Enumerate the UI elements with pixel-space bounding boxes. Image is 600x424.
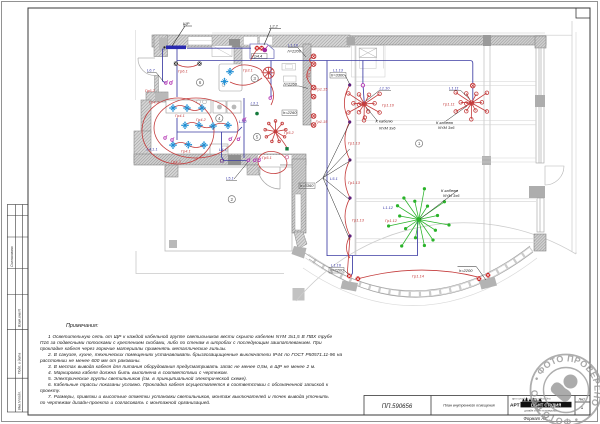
svg-text:L1.10: L1.10: [380, 86, 391, 91]
svg-text:П16 за подвесными потолками с: П16 за подвесными потолками с креплением…: [40, 340, 322, 346]
svg-text:Согласовано: Согласовано: [10, 246, 14, 267]
svg-text:Гр1.13: Гр1.13: [348, 141, 361, 146]
svg-text:3: 3: [253, 76, 256, 81]
svg-text:Гр4.1: Гр4.1: [175, 113, 185, 118]
svg-text:Гр4.3: Гр4.3: [171, 159, 182, 164]
svg-text:Подп. и дата: Подп. и дата: [18, 353, 22, 374]
svg-text:ПП.590656: ПП.590656: [382, 404, 413, 410]
svg-text:ЩР: ЩР: [183, 21, 190, 26]
svg-text:h=2200: h=2200: [288, 48, 302, 53]
svg-text:6: 6: [199, 80, 202, 85]
svg-text:L5.1: L5.1: [330, 176, 338, 181]
svg-text:Инв.N подл.: Инв.N подл.: [18, 391, 22, 410]
svg-text:6. Кабельные трассы показа: 6. Кабельные трассы показаны условно. Пр…: [48, 381, 329, 388]
svg-text:Гр4.2: Гр4.2: [196, 117, 207, 122]
svg-text:2: 2: [231, 197, 234, 202]
svg-text:h=3360: h=3360: [300, 183, 314, 188]
svg-text:NYM 3х6: NYM 3х6: [443, 193, 460, 198]
svg-text:2. В санузле, кухне, техни: 2. В санузле, кухне, технических помещен…: [47, 352, 342, 358]
svg-text:L5.1: L5.1: [226, 176, 234, 181]
svg-text:L3.1: L3.1: [251, 101, 259, 106]
svg-text:L2.2: L2.2: [270, 24, 279, 29]
svg-text:Гр1.15: Гр1.15: [316, 119, 329, 124]
svg-text:проекту.: проекту.: [40, 389, 60, 394]
svg-text:h=3300: h=3300: [331, 73, 345, 78]
svg-text:7. Размеры, привязки и выс: 7. Размеры, привязки и высотные отметки …: [48, 393, 329, 400]
svg-text:h=2200: h=2200: [459, 268, 473, 273]
svg-text:Гр1.13: Гр1.13: [352, 218, 365, 223]
svg-text:NYM 3х6: NYM 3х6: [379, 126, 396, 131]
svg-text:прокладке кабеля через горючие: прокладке кабеля через горючие материалы…: [40, 346, 227, 352]
svg-text:1: 1: [418, 141, 421, 146]
svg-text:К кабелю: К кабелю: [376, 119, 393, 124]
svg-text:План внутреннего освещения: План внутреннего освещения: [443, 404, 495, 408]
svg-text:Гр1.11: Гр1.11: [443, 102, 455, 107]
svg-text:5: 5: [256, 135, 259, 140]
svg-text:NYM 3х6: NYM 3х6: [438, 125, 455, 130]
svg-text:5. Электрические группы св: 5. Электрические группы светильников (см…: [48, 375, 247, 382]
svg-text:Гр5.1: Гр5.1: [262, 155, 272, 160]
svg-text:Примечания:: Примечания:: [66, 323, 99, 329]
svg-text:L4.1.1: L4.1.1: [147, 147, 158, 152]
svg-text:АРТ: АРТ: [510, 403, 520, 409]
svg-text:Гр3.1: Гр3.1: [243, 68, 253, 73]
svg-text:h=2200: h=2200: [330, 268, 344, 273]
svg-text:Гр4.1: Гр4.1: [181, 149, 191, 154]
svg-text:Гр4.3: Гр4.3: [149, 100, 160, 105]
svg-text:Гр4.4: Гр4.4: [253, 54, 264, 59]
svg-text:L4.1: L4.1: [219, 147, 227, 152]
svg-text:Взам.инв.N: Взам.инв.N: [18, 309, 22, 327]
svg-text:Гр6.1: Гр6.1: [178, 69, 188, 74]
svg-text:L6.7: L6.7: [147, 68, 156, 73]
svg-text:4. Маркировка кабеля должн: 4. Маркировка кабеля должна быть выполне…: [48, 370, 228, 376]
svg-text:Гр1.10: Гр1.10: [382, 103, 395, 108]
svg-text:Гр1.12: Гр1.12: [385, 218, 398, 223]
svg-text:h=2260: h=2260: [283, 110, 297, 115]
svg-text:3. В местах вывода кабеля: 3. В местах вывода кабеля для питания об…: [48, 364, 316, 370]
svg-text:Лист: Лист: [579, 398, 586, 402]
svg-text:L1.16: L1.16: [288, 43, 299, 48]
svg-text:L1.12: L1.12: [383, 205, 394, 210]
svg-text:4: 4: [218, 116, 221, 121]
svg-text:Гр1.14: Гр1.14: [412, 274, 425, 279]
svg-text:Гр1.15: Гр1.15: [316, 87, 329, 92]
svg-text:L3.2: L3.2: [239, 119, 248, 124]
svg-text:Гр5.2: Гр5.2: [284, 130, 295, 135]
svg-text:Гр6.2: Гр6.2: [145, 88, 156, 93]
svg-text:Гр1.13: Гр1.13: [348, 180, 361, 185]
svg-text:1 Осветительную сеть от ЩР: 1 Осветительную сеть от ЩР к каждой кабе…: [48, 333, 332, 340]
svg-text:h=2260: h=2260: [284, 81, 298, 86]
svg-text:расстоянии не менее 600 мм от: расстоянии не менее 600 мм от раковины.: [39, 358, 141, 364]
svg-text:L1.11: L1.11: [449, 86, 459, 91]
svg-text:по чертежам дизайн-проекта и с: по чертежам дизайн-проекта и согласовать…: [40, 399, 210, 406]
